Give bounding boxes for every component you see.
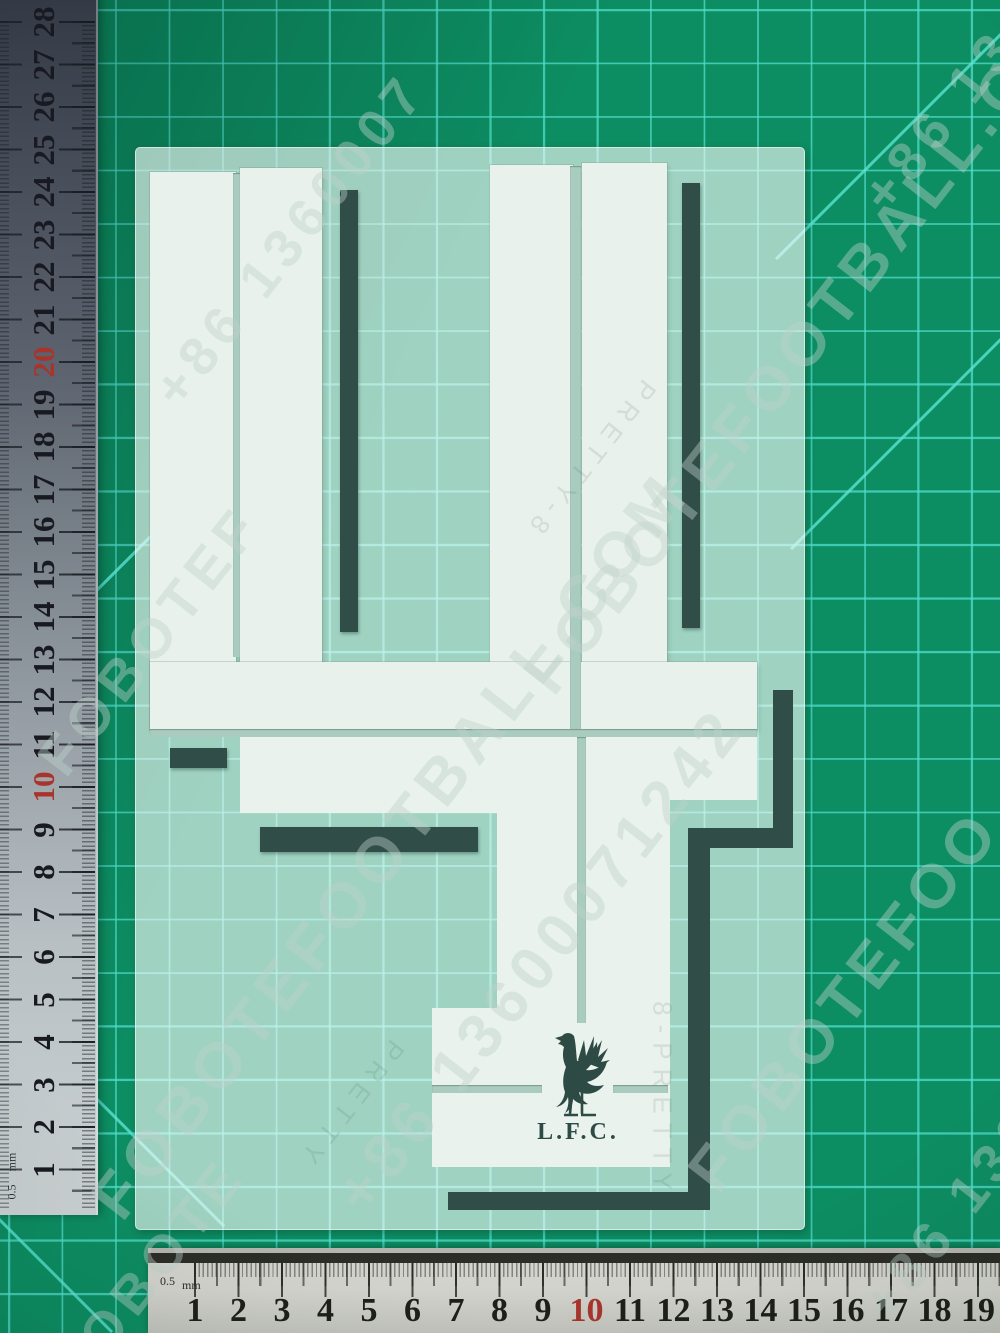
accent-dash bbox=[170, 748, 227, 768]
cut-slit-badge-right bbox=[613, 1085, 668, 1093]
bottom-ruler-number: 5 bbox=[361, 1292, 378, 1330]
bottom-ruler-number: 19 bbox=[961, 1292, 995, 1330]
left-ruler-number: 8 bbox=[26, 864, 62, 880]
left-ruler-number: 22 bbox=[26, 262, 62, 293]
left-ruler-number: 23 bbox=[26, 219, 62, 250]
left-ruler-number: 21 bbox=[26, 304, 62, 335]
left-ruler-number: 12 bbox=[26, 687, 62, 718]
mat-diagonal-line bbox=[775, 5, 1000, 260]
bottom-ruler-number: 14 bbox=[744, 1292, 778, 1330]
left-ruler-number: 26 bbox=[26, 92, 62, 123]
left-ruler-number: 7 bbox=[26, 907, 62, 923]
left-ruler-ticks-right bbox=[59, 2, 95, 1209]
bottom-ruler-number: 3 bbox=[274, 1292, 291, 1330]
left-ruler-number: 27 bbox=[26, 49, 62, 80]
left-ruler-number: 15 bbox=[26, 559, 62, 590]
cut-line-right-pair bbox=[570, 166, 581, 730]
mat-diagonal-line bbox=[790, 304, 1000, 550]
left-ruler-number: 9 bbox=[26, 822, 62, 838]
left-ruler-number: 16 bbox=[26, 517, 62, 548]
bottom-ruler-number: 8 bbox=[491, 1292, 508, 1330]
left-ruler-half-label: 0.5 bbox=[5, 1185, 20, 1200]
bottom-ruler-number: 16 bbox=[831, 1292, 865, 1330]
left-ruler-number: 17 bbox=[26, 474, 62, 505]
bottom-ruler-number: 7 bbox=[448, 1292, 465, 1330]
cut-line-stem bbox=[577, 737, 586, 1023]
left-ruler-number: 19 bbox=[26, 389, 62, 420]
left-ruler: 0.5 mm 282726252423222120191817161514131… bbox=[0, 0, 98, 1215]
numeral-4-crossbar-upper bbox=[150, 662, 757, 730]
cut-slit-badge-left bbox=[432, 1085, 542, 1093]
bottom-ruler-number: 11 bbox=[614, 1292, 646, 1330]
bottom-ruler-half-label: 0.5 bbox=[160, 1274, 175, 1289]
accent-bar bbox=[260, 827, 478, 852]
bottom-ruler-number: 18 bbox=[918, 1292, 952, 1330]
bottom-ruler: 0.5 mm 12345678910111213141516171819 bbox=[148, 1248, 1000, 1333]
bottom-ruler-number: 17 bbox=[874, 1292, 908, 1330]
bottom-ruler-number: 10 bbox=[570, 1292, 604, 1330]
left-ruler-number: 5 bbox=[26, 992, 62, 1008]
mat-diagonal-line bbox=[0, 1218, 113, 1333]
liver-bird-icon bbox=[550, 1030, 614, 1118]
left-ruler-number: 2 bbox=[26, 1119, 62, 1135]
left-ruler-number: 1 bbox=[26, 1162, 62, 1178]
left-ruler-unit-label: mm bbox=[5, 1153, 20, 1172]
bottom-ruler-number: 15 bbox=[787, 1292, 821, 1330]
left-ruler-number: 11 bbox=[26, 730, 62, 759]
left-ruler-number: 28 bbox=[26, 7, 62, 38]
left-ruler-ticks-left bbox=[0, 2, 22, 1209]
left-ruler-number: 25 bbox=[26, 134, 62, 165]
numeral-4-strip-right-outer bbox=[582, 163, 667, 730]
left-ruler-number: 10 bbox=[26, 772, 62, 803]
left-ruler-number: 6 bbox=[26, 949, 62, 965]
cut-line-left-pair bbox=[233, 173, 240, 657]
photo-canvas: L.F.C. 0.5 mm 28272625242322212019181716… bbox=[0, 0, 1000, 1333]
left-ruler-number: 3 bbox=[26, 1077, 62, 1093]
pinstripe-right bbox=[682, 183, 700, 628]
left-ruler-number: 24 bbox=[26, 177, 62, 208]
bottom-ruler-number: 1 bbox=[187, 1292, 204, 1330]
bottom-ruler-number: 9 bbox=[535, 1292, 552, 1330]
bottom-ruler-number: 6 bbox=[404, 1292, 421, 1330]
cut-line-crossbar bbox=[150, 729, 757, 737]
left-ruler-number: 18 bbox=[26, 432, 62, 463]
bottom-ruler-unit-label: mm bbox=[182, 1278, 201, 1293]
bottom-ruler-number: 13 bbox=[700, 1292, 734, 1330]
left-ruler-number: 4 bbox=[26, 1034, 62, 1050]
numeral-4-strip-left-outer bbox=[150, 172, 236, 730]
pinstripe-left bbox=[340, 190, 358, 632]
numeral-4-strip-left-inner bbox=[240, 168, 322, 730]
lfc-initials: L.F.C. bbox=[528, 1119, 628, 1146]
bottom-ruler-number: 4 bbox=[317, 1292, 334, 1330]
left-ruler-number: 13 bbox=[26, 644, 62, 675]
bottom-ruler-number: 2 bbox=[230, 1292, 247, 1330]
left-ruler-number: 20 bbox=[26, 347, 62, 378]
left-ruler-number: 14 bbox=[26, 602, 62, 633]
numeral-4-strip-right-inner bbox=[490, 165, 573, 730]
bottom-ruler-number: 12 bbox=[657, 1292, 691, 1330]
